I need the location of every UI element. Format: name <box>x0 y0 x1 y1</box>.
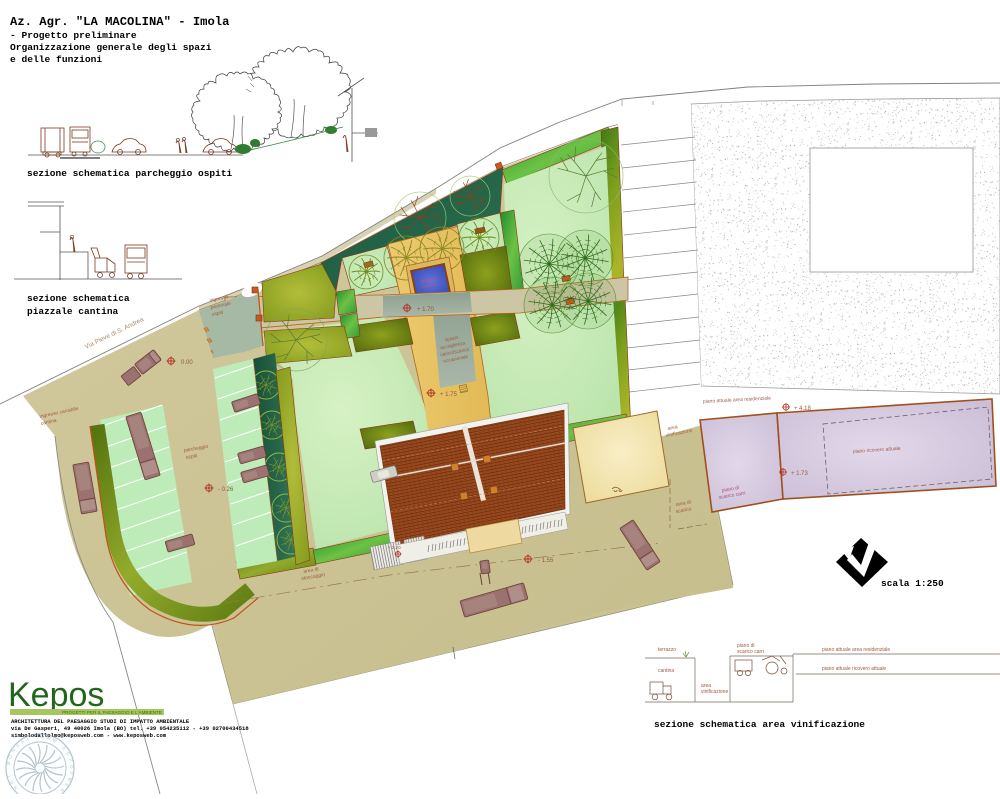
svg-text:scala 1:250: scala 1:250 <box>881 578 944 589</box>
svg-text:- 1.55: - 1.55 <box>538 558 554 564</box>
svg-text:piazzale cantina: piazzale cantina <box>27 306 119 317</box>
svg-text:scarico carri: scarico carri <box>737 649 764 655</box>
svg-text:+ 1.75: + 1.75 <box>440 392 458 398</box>
svg-text:sezione schematica: sezione schematica <box>27 293 130 304</box>
svg-text:e delle funzioni: e delle funzioni <box>10 54 102 65</box>
svg-text:sezione schematica parcheggio: sezione schematica parcheggio ospiti <box>27 168 233 179</box>
svg-text:B: B <box>6 762 11 766</box>
svg-text:cantina: cantina <box>658 668 674 674</box>
svg-text:ARCHITETTURA DEL PAESAGGIO S: ARCHITETTURA DEL PAESAGGIO STUDI DI IMPA… <box>11 718 190 725</box>
svg-text:piano attuale area residenzial: piano attuale area residenziale <box>822 647 890 653</box>
svg-text:+ 1.73: + 1.73 <box>791 471 809 477</box>
svg-text:vinificazione: vinificazione <box>701 689 728 695</box>
svg-text:via De Gasperi, 49 40026 Imola: via De Gasperi, 49 40026 Imola (BO) tel.… <box>11 725 249 732</box>
svg-text:S: S <box>69 771 74 775</box>
svg-text:Az. Agr. "LA MACOLINA" - Imola: Az. Agr. "LA MACOLINA" - Imola <box>10 15 230 29</box>
svg-text:terrazzo: terrazzo <box>658 647 676 653</box>
svg-text:piano attuale ricovero attuale: piano attuale ricovero attuale <box>822 666 886 672</box>
svg-text:- Progetto preliminare: - Progetto preliminare <box>10 30 137 41</box>
svg-text:Kepos: Kepos <box>8 676 104 714</box>
svg-text:+ 1.70: + 1.70 <box>417 307 435 313</box>
svg-text:+ 2.20: + 2.20 <box>388 545 401 550</box>
svg-text:sezione schematica area vinifi: sezione schematica area vinificazione <box>654 719 865 730</box>
svg-text:+ 4.18: + 4.18 <box>794 406 812 412</box>
svg-text:- 0.26: - 0.26 <box>218 487 234 493</box>
svg-text:PROGETTI PER IL PAESAGGIO E L': PROGETTI PER IL PAESAGGIO E L'AMBIENTE <box>62 710 162 715</box>
svg-text:Organizzazione generale degli: Organizzazione generale degli spazi <box>10 42 212 53</box>
svg-text:0.00: 0.00 <box>181 360 193 366</box>
svg-text:simbolodallolmo@keposweb.com -: simbolodallolmo@keposweb.com - www.kepos… <box>11 732 167 739</box>
